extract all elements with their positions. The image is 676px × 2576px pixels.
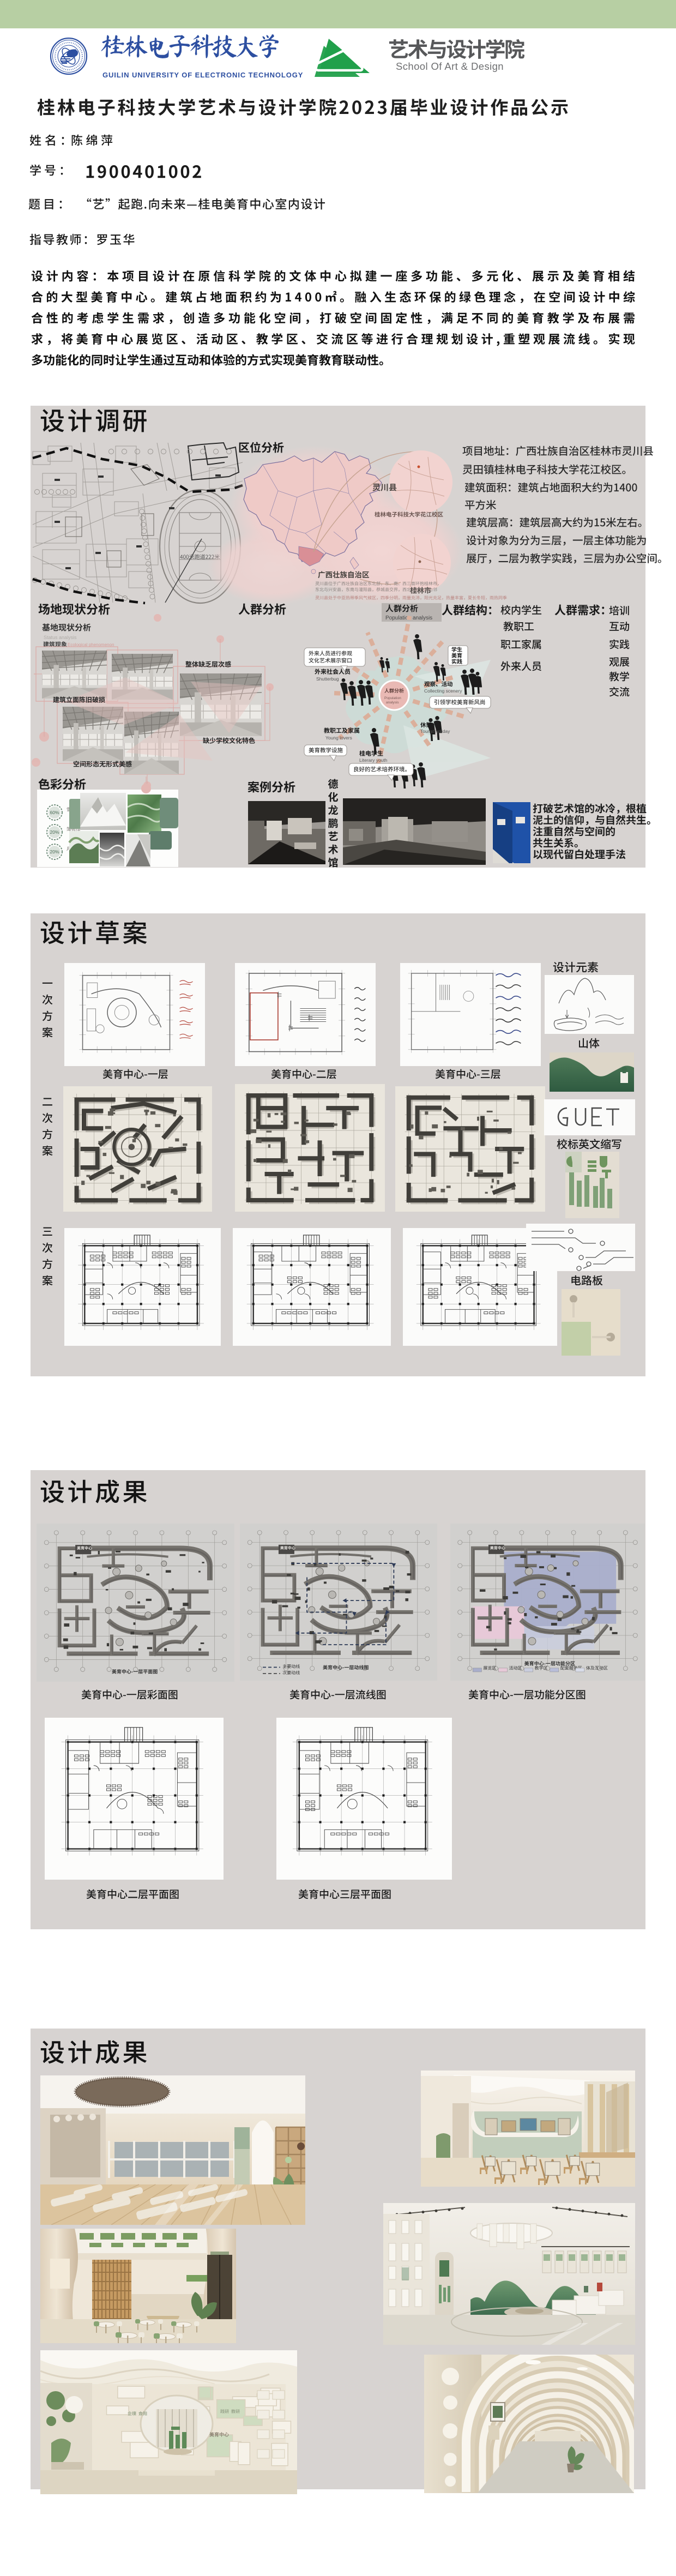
svg-text:Literary youth: Literary youth: [359, 757, 388, 763]
svg-text:GUILIN UNIVERSITY OF ELECTRONI: GUILIN UNIVERSITY OF ELECTRONIC TECHNOLO…: [102, 71, 303, 79]
svg-text:analysis: analysis: [386, 701, 399, 705]
svg-text:Tourist holiday: Tourist holiday: [420, 729, 450, 734]
svg-text:School Of Art & Design: School Of Art & Design: [396, 61, 504, 72]
svg-text:20%: 20%: [50, 849, 59, 854]
svg-text:Shutterbug: Shutterbug: [316, 676, 339, 682]
svg-text:Collecting scenery: Collecting scenery: [424, 688, 462, 694]
svg-text:20%: 20%: [50, 829, 59, 835]
svg-text:Population: Population: [384, 696, 401, 700]
svg-text:60%: 60%: [50, 810, 59, 815]
svg-text:Young lovers: Young lovers: [325, 735, 352, 741]
svg-text:Status analysis: Status analysis: [44, 635, 77, 640]
